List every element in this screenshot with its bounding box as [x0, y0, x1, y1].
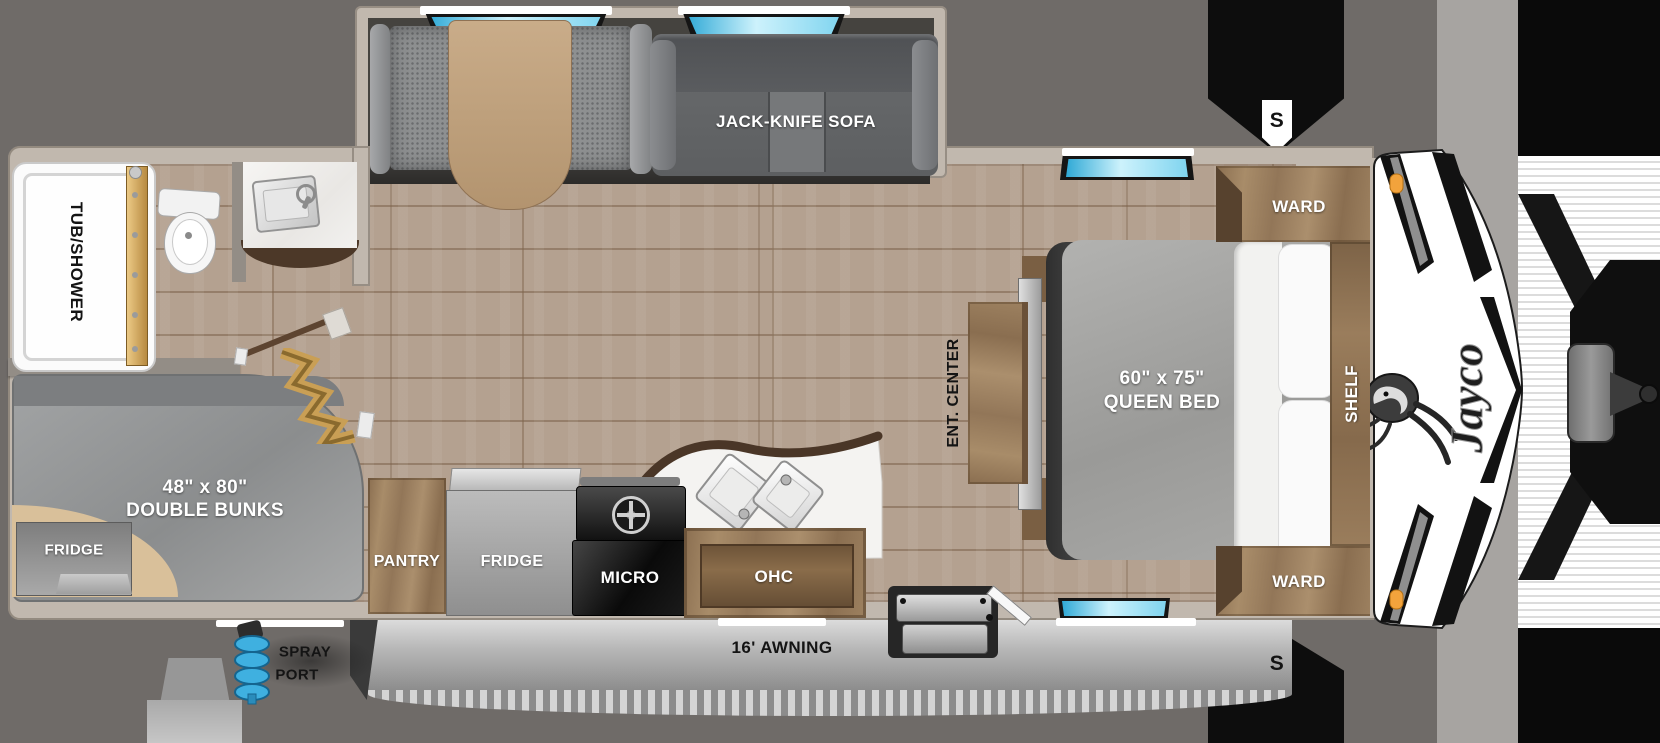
- door-side-marker-bar: [718, 618, 826, 626]
- bedroom-window-bar: [1062, 148, 1194, 156]
- rv-floorplan: S S 16' AWNING SPRAY PORT J: [0, 0, 1660, 743]
- dinette-armrest-right: [630, 24, 652, 174]
- marker-light-top: [1390, 174, 1403, 193]
- slideout-window-right: [686, 17, 842, 35]
- micro-label: MICRO: [601, 568, 660, 588]
- door-jamb-left: [234, 347, 248, 366]
- ward-top-label: WARD: [1272, 197, 1326, 217]
- shower-door-knob: [129, 166, 142, 179]
- entry-step-bolt-left: [900, 598, 906, 604]
- dinette-table: [448, 20, 572, 210]
- kitchen-fridge-label: FRIDGE: [481, 553, 544, 571]
- ent-center-label: ENT. CENTER: [945, 338, 963, 447]
- ohc-label: OHC: [755, 567, 794, 587]
- corner-black-top: [1518, 0, 1660, 156]
- sink-faucet-1: [739, 509, 749, 519]
- jayco-logo-text: Jayco: [1441, 343, 1492, 454]
- spray-port-label-2: PORT: [275, 666, 318, 683]
- slideout-window-bar-right: [678, 6, 850, 15]
- shelf-label: SHELF: [1342, 365, 1362, 423]
- stove-burner-icon: [612, 496, 650, 534]
- tank-cover: [1568, 344, 1614, 442]
- queen-bed-label: QUEEN BED: [1104, 392, 1221, 414]
- entry-door-hinge: [986, 614, 993, 621]
- bedroom-window2: [1062, 601, 1166, 616]
- bed-pillow-top: [1278, 244, 1336, 398]
- ent-center-cabinet: [968, 302, 1028, 484]
- sofa-label: JACK-KNIFE SOFA: [716, 112, 876, 132]
- compartment-marker-bar: [216, 620, 344, 627]
- bunks-label: DOUBLE BUNKS: [126, 500, 284, 522]
- rear-jack-box: [160, 658, 230, 704]
- bunk-fridge-label: FRIDGE: [44, 541, 103, 558]
- bedroom-window2-bar: [1056, 618, 1196, 626]
- toilet-bowl: [164, 212, 216, 274]
- sink-faucet-2: [781, 475, 791, 485]
- bed-pillow-bottom: [1278, 400, 1336, 560]
- shower-hinge-2: [132, 232, 138, 238]
- toilet-seat: [172, 219, 208, 265]
- bedroom-window: [1066, 159, 1188, 177]
- shower-hinge-4: [132, 312, 138, 318]
- front-cap: Jayco: [1370, 142, 1536, 636]
- dinette-armrest-left: [370, 24, 390, 174]
- shower-hinge-5: [132, 346, 138, 352]
- entry-step-1: [896, 594, 992, 622]
- awning-label: 16' AWNING: [732, 638, 833, 658]
- jack-handwheel: [1640, 385, 1658, 403]
- pantry-cabinet: [368, 478, 446, 614]
- tub-shower-label: TUB/SHOWER: [66, 202, 86, 322]
- ward-bottom-label: WARD: [1272, 572, 1326, 592]
- awning-ribbed-edge: [368, 690, 1292, 716]
- sofa-armrest-right: [912, 40, 938, 170]
- queen-bed-size-label: 60" x 75": [1119, 368, 1204, 390]
- corner-black-bottom: [1518, 628, 1660, 743]
- spray-port-label-1: SPRAY: [279, 643, 331, 660]
- bunk-fridge-lip: [56, 574, 132, 594]
- vanity-sink: [251, 175, 320, 233]
- spray-port-hose-icon: [228, 632, 276, 706]
- bunks-size-label: 48" x 80": [162, 477, 247, 499]
- entry-step-2: [902, 624, 988, 654]
- rear-jack-pad: [147, 700, 242, 743]
- marker-light-bottom: [1390, 590, 1403, 609]
- sofa-armrest-left: [650, 40, 676, 170]
- entry-step-bolt-right: [980, 598, 986, 604]
- slideout-window-bar-left: [420, 6, 612, 15]
- hitch-tongue: [1518, 142, 1660, 632]
- shower-hinge-3: [132, 272, 138, 278]
- bed-blanket: [1234, 242, 1282, 558]
- toilet-flush-button: [185, 232, 192, 239]
- shower-hinge-1: [132, 192, 138, 198]
- range-vent: [580, 477, 680, 486]
- stabilizer-top-label: S: [1270, 109, 1284, 133]
- sofa-center-cushion: [768, 92, 826, 172]
- sofa-backrest: [652, 34, 938, 92]
- stabilizer-bottom-label: S: [1270, 652, 1284, 676]
- pantry-label: PANTRY: [374, 553, 440, 571]
